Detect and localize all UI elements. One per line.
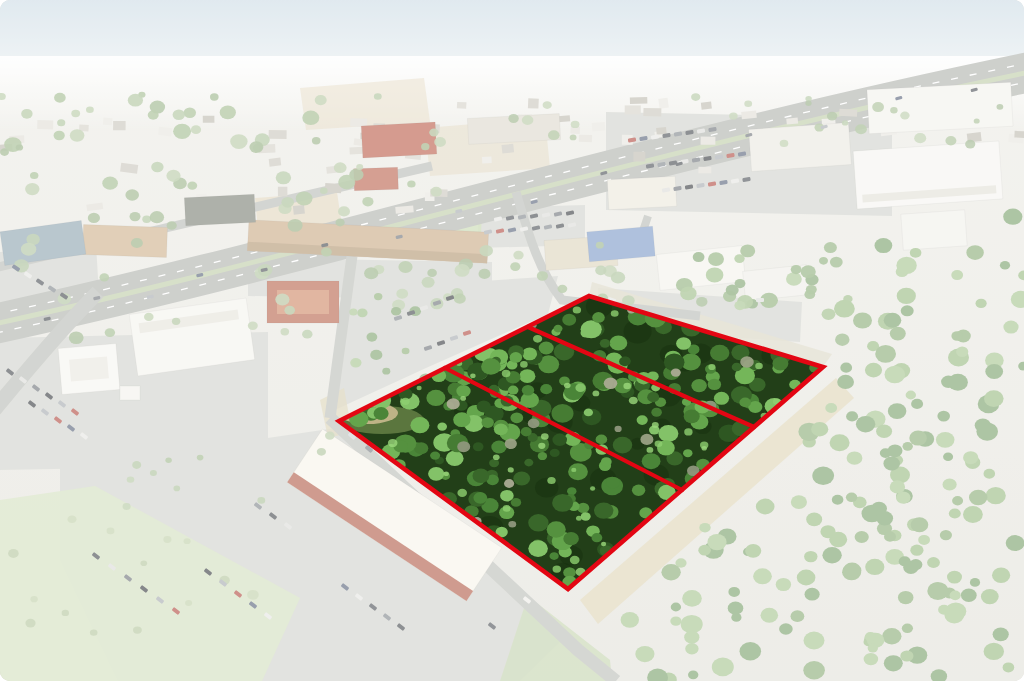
parcel-tree xyxy=(592,312,605,323)
parcel-tree xyxy=(521,427,532,436)
canopy-highlight xyxy=(702,446,707,451)
parcel-tree xyxy=(619,357,631,367)
parcel-tree xyxy=(522,348,537,361)
canopy-highlight xyxy=(503,505,511,512)
canopy-highlight xyxy=(708,364,715,370)
canopy-highlight xyxy=(502,370,511,377)
canopy-highlight xyxy=(655,441,663,448)
parcel-tree xyxy=(477,401,491,413)
parcel-tree xyxy=(511,498,521,507)
parcel-tree xyxy=(430,451,440,459)
parcel-tree xyxy=(446,451,464,466)
dead-tree xyxy=(528,419,540,429)
canopy-highlight xyxy=(755,363,763,370)
parcel-tree xyxy=(410,417,429,433)
parcel-tree xyxy=(772,357,788,371)
parcel-tree xyxy=(456,385,470,397)
parcel-tree xyxy=(568,463,588,480)
parcel-tree xyxy=(710,345,729,362)
parcel-tree xyxy=(522,385,534,395)
parcel-tree xyxy=(524,459,533,467)
canopy-highlight xyxy=(520,361,528,368)
parcel-tree xyxy=(453,412,470,427)
parcel-tree xyxy=(739,398,751,408)
dead-tree xyxy=(457,441,470,452)
dead-tree xyxy=(615,426,622,432)
parcel-tree xyxy=(632,485,645,496)
parcel-tree xyxy=(651,408,662,417)
canopy-highlight xyxy=(470,373,475,378)
dead-tree xyxy=(504,479,514,488)
canopy-highlight xyxy=(647,447,654,453)
parcel-tree xyxy=(581,512,591,520)
parcel-tree xyxy=(547,521,566,537)
parcel-tree xyxy=(584,409,593,417)
parcel-tree xyxy=(601,457,612,466)
parcel-tree xyxy=(519,369,535,383)
canopy-highlight xyxy=(553,566,562,573)
parcel-tree xyxy=(473,442,484,451)
parcel-tree xyxy=(482,417,494,428)
dead-tree xyxy=(505,439,517,449)
canopy-highlight xyxy=(401,398,409,405)
parcel-tree xyxy=(600,339,610,348)
parcel-tree xyxy=(575,383,585,392)
canopy-highlight xyxy=(444,472,449,477)
parcel-tree xyxy=(684,410,700,424)
parcel-tree xyxy=(528,540,548,557)
parcel-tree xyxy=(550,552,559,560)
aerial-listing-photo-frame: Aerial drone photograph of a wooded land… xyxy=(0,0,1024,681)
parcel-tree xyxy=(473,492,487,504)
parcel-tree xyxy=(473,469,490,483)
canopy-highlight xyxy=(590,486,595,490)
canopy-highlight xyxy=(564,383,571,389)
canopy-highlight xyxy=(570,556,580,564)
parcel-tree xyxy=(552,404,574,423)
dead-tree xyxy=(671,368,681,376)
canopy-highlight xyxy=(417,386,422,390)
parcel-tree xyxy=(708,379,721,390)
parcel-tree xyxy=(500,490,514,502)
canopy-highlight xyxy=(684,428,692,435)
parcel-tree xyxy=(510,412,523,423)
canopy-highlight xyxy=(508,467,514,472)
parcel-tree xyxy=(732,363,742,372)
parcel-tree xyxy=(567,487,576,495)
canopy-highlight xyxy=(460,396,466,401)
parcel-tree xyxy=(606,477,620,489)
dead-tree xyxy=(640,434,653,445)
canopy-highlight xyxy=(593,391,600,397)
aerial-photo: Aerial drone photograph of a wooded land… xyxy=(0,0,1024,681)
canopy-highlight xyxy=(533,335,542,343)
parcel-tree xyxy=(510,352,523,363)
canopy-highlight xyxy=(388,439,398,447)
canopy-highlight xyxy=(611,310,619,317)
canopy-highlight xyxy=(623,383,631,389)
parcel-tree xyxy=(676,337,691,350)
parcel-tree xyxy=(664,353,685,371)
parcel-tree xyxy=(610,335,628,350)
parcel-tree xyxy=(539,342,554,355)
parcel-tree xyxy=(538,452,547,460)
canopy-highlight xyxy=(538,443,545,449)
parcel-tree xyxy=(426,390,445,406)
parcel-tree xyxy=(494,423,508,435)
parcel-tree xyxy=(581,320,602,338)
parcel-tree xyxy=(374,407,389,420)
parcel-tree xyxy=(513,471,530,485)
parcel-tree xyxy=(642,453,661,469)
parcel-tree xyxy=(683,449,692,457)
parcel-tree xyxy=(714,392,729,405)
dead-tree xyxy=(604,378,618,390)
canopy-highlight xyxy=(576,516,582,521)
parcel-tree xyxy=(691,379,707,392)
parcel-tree xyxy=(540,384,552,394)
parcel-tree xyxy=(552,494,573,512)
parcel-tree xyxy=(563,532,579,545)
parcel-tree xyxy=(658,425,678,442)
parcel-tree xyxy=(428,467,444,481)
parcel-tree xyxy=(489,459,499,467)
parcel-tree xyxy=(552,434,567,446)
canopy-highlight xyxy=(573,307,581,314)
parcel-tree xyxy=(437,423,447,431)
dead-tree xyxy=(740,356,754,368)
dead-tree xyxy=(508,521,516,528)
dead-tree xyxy=(447,398,460,409)
parcel-tree xyxy=(508,386,519,395)
canopy-highlight xyxy=(652,422,659,428)
canopy-highlight xyxy=(629,397,638,405)
canopy-highlight xyxy=(571,468,576,472)
parcel-tree xyxy=(562,314,576,326)
parcel-tree xyxy=(550,449,560,457)
parcel-tree xyxy=(554,325,563,333)
parcel-tree xyxy=(594,502,613,518)
parcel-tree xyxy=(481,358,501,375)
parcel-tree xyxy=(592,533,603,542)
parcel-tree xyxy=(647,392,659,402)
parcel-tree xyxy=(637,415,648,425)
parcel-tree xyxy=(528,514,548,531)
parcel-tree xyxy=(491,441,506,454)
canopy-highlight xyxy=(457,489,467,497)
canopy-highlight xyxy=(547,477,555,484)
canopy-highlight xyxy=(493,454,500,460)
canopy-highlight xyxy=(541,433,549,439)
canopy-highlight xyxy=(601,542,606,546)
parcel-tree xyxy=(613,437,633,454)
parcel-tree xyxy=(596,435,608,445)
